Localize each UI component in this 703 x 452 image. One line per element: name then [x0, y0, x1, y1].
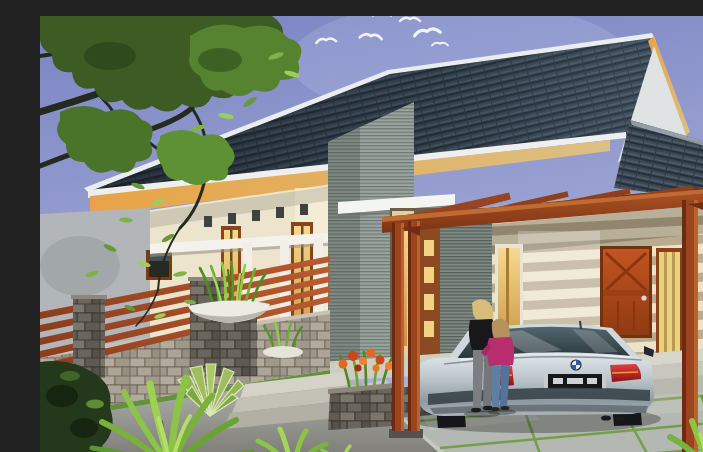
car-antenna — [580, 321, 581, 329]
child-shoe — [501, 406, 510, 410]
tower-shadow-side — [328, 128, 360, 374]
woman-shoe — [471, 408, 481, 413]
child-shoe — [491, 407, 500, 411]
pillar-cap — [71, 295, 107, 299]
bush-texture — [86, 400, 104, 409]
child-pink-jacket — [487, 337, 514, 366]
bush-texture — [46, 385, 78, 407]
exhaust-pipe — [615, 416, 625, 421]
bush-texture — [60, 371, 80, 381]
door-handle — [641, 295, 646, 300]
bush-texture — [70, 418, 98, 438]
indicator-line — [612, 372, 638, 373]
tall-window-right-of-door — [656, 248, 683, 358]
plate-characters — [553, 378, 597, 384]
rendering-canvas: Modern tropical house exterior rendering — [40, 16, 703, 452]
front-door — [600, 246, 652, 338]
architectural-rendering: Modern tropical house exterior rendering — [40, 16, 703, 452]
exhaust-pipe — [601, 415, 611, 420]
